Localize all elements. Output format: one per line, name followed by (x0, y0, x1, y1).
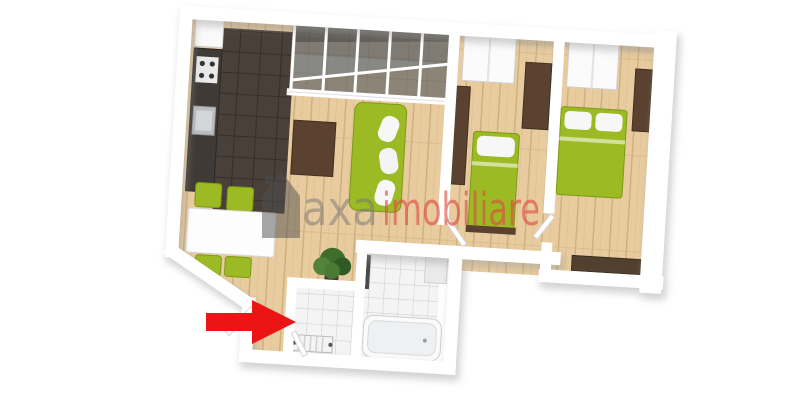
tv-stand (291, 120, 336, 176)
wall-divider-stub (545, 248, 547, 276)
bed-pillow (595, 113, 623, 133)
bed-pillow (564, 111, 592, 131)
bed-pillow (476, 135, 515, 157)
wall-bath-west (355, 247, 362, 363)
watermark-text-axa: axa (302, 182, 378, 237)
bathtub-basin (367, 320, 437, 356)
watermark-text-imobiliare: imobiliare (382, 183, 540, 236)
wall-bath-east (449, 252, 456, 368)
wall-east (651, 42, 666, 283)
wardrobe (522, 62, 552, 129)
sink-basin (195, 110, 212, 131)
stove (195, 56, 219, 83)
dining-chair (224, 256, 251, 278)
dining-chair (226, 186, 253, 212)
exterior-below-dining (155, 300, 249, 367)
wall-wc-north (292, 282, 360, 286)
dining-chair (195, 182, 222, 208)
floor-plan-image: axa imobiliare (0, 0, 800, 404)
floor-plan-svg: axa imobiliare (0, 0, 800, 404)
